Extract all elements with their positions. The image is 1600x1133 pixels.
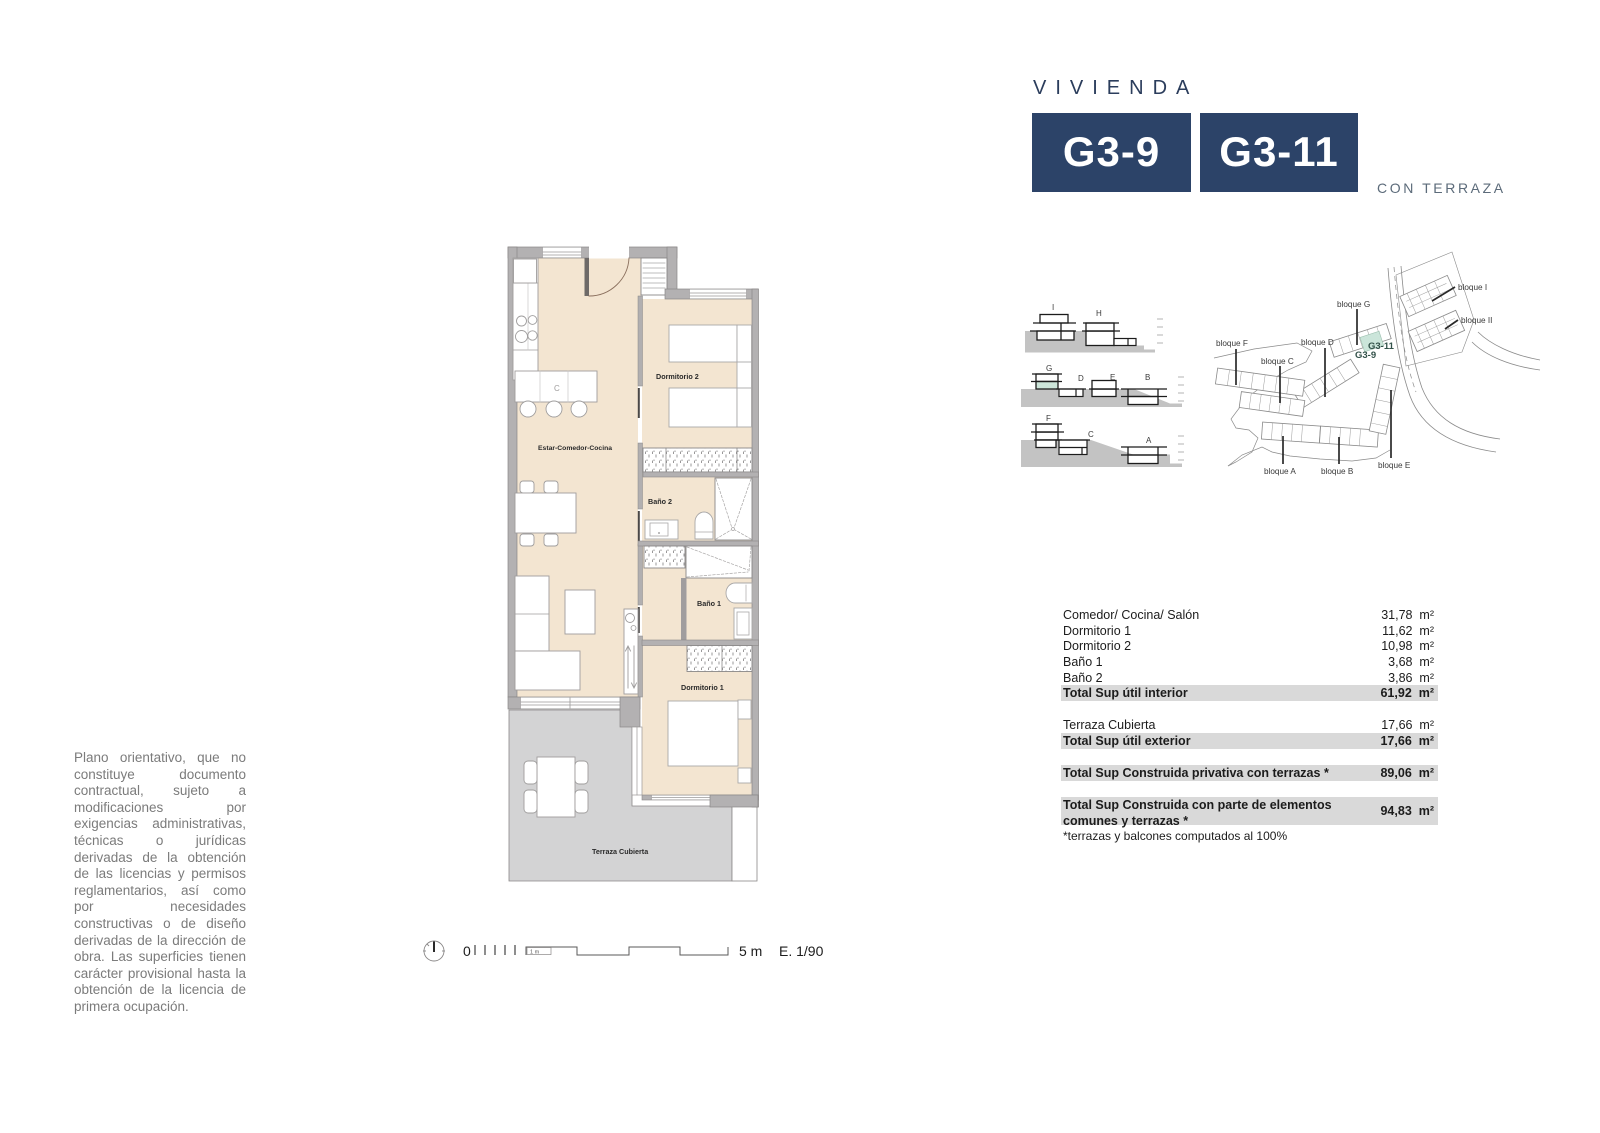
svg-text:bloque C: bloque C bbox=[1261, 357, 1294, 366]
svg-text:Baño 2: Baño 2 bbox=[648, 497, 672, 506]
svg-text:Terraza Cubierta: Terraza Cubierta bbox=[592, 847, 649, 856]
svg-text:bloque II: bloque II bbox=[1461, 316, 1492, 325]
svg-text:Dormitorio 2: Dormitorio 2 bbox=[656, 372, 699, 381]
svg-text:A: A bbox=[1146, 436, 1152, 445]
svg-text:bloque E: bloque E bbox=[1378, 461, 1411, 470]
svg-text:1 m: 1 m bbox=[530, 950, 540, 956]
svg-text:5 m: 5 m bbox=[739, 943, 762, 959]
svg-text:E: E bbox=[1110, 373, 1115, 382]
svg-text:bloque G: bloque G bbox=[1337, 300, 1370, 309]
svg-text:C: C bbox=[554, 384, 560, 393]
svg-text:Baño 1: Baño 1 bbox=[697, 599, 721, 608]
svg-text:Dormitorio 1: Dormitorio 1 bbox=[681, 683, 724, 692]
svg-text:bloque B: bloque B bbox=[1321, 467, 1354, 476]
svg-text:C: C bbox=[1088, 430, 1094, 439]
svg-text:D: D bbox=[1078, 374, 1084, 383]
svg-text:H: H bbox=[1096, 309, 1102, 318]
svg-text:E. 1/90: E. 1/90 bbox=[779, 943, 824, 959]
svg-text:I: I bbox=[1052, 303, 1054, 312]
svg-text:bloque I: bloque I bbox=[1458, 283, 1487, 292]
svg-text:B: B bbox=[1145, 373, 1150, 382]
svg-text:bloque D: bloque D bbox=[1301, 338, 1334, 347]
svg-text:bloque F: bloque F bbox=[1216, 339, 1248, 348]
svg-text:Estar-Comedor-Cocina: Estar-Comedor-Cocina bbox=[538, 445, 612, 452]
svg-text:F: F bbox=[1046, 414, 1051, 423]
svg-text:bloque A: bloque A bbox=[1264, 467, 1296, 476]
svg-text:0: 0 bbox=[463, 943, 471, 959]
svg-text:G: G bbox=[1046, 364, 1052, 373]
svg-text:G3-9: G3-9 bbox=[1355, 350, 1376, 361]
